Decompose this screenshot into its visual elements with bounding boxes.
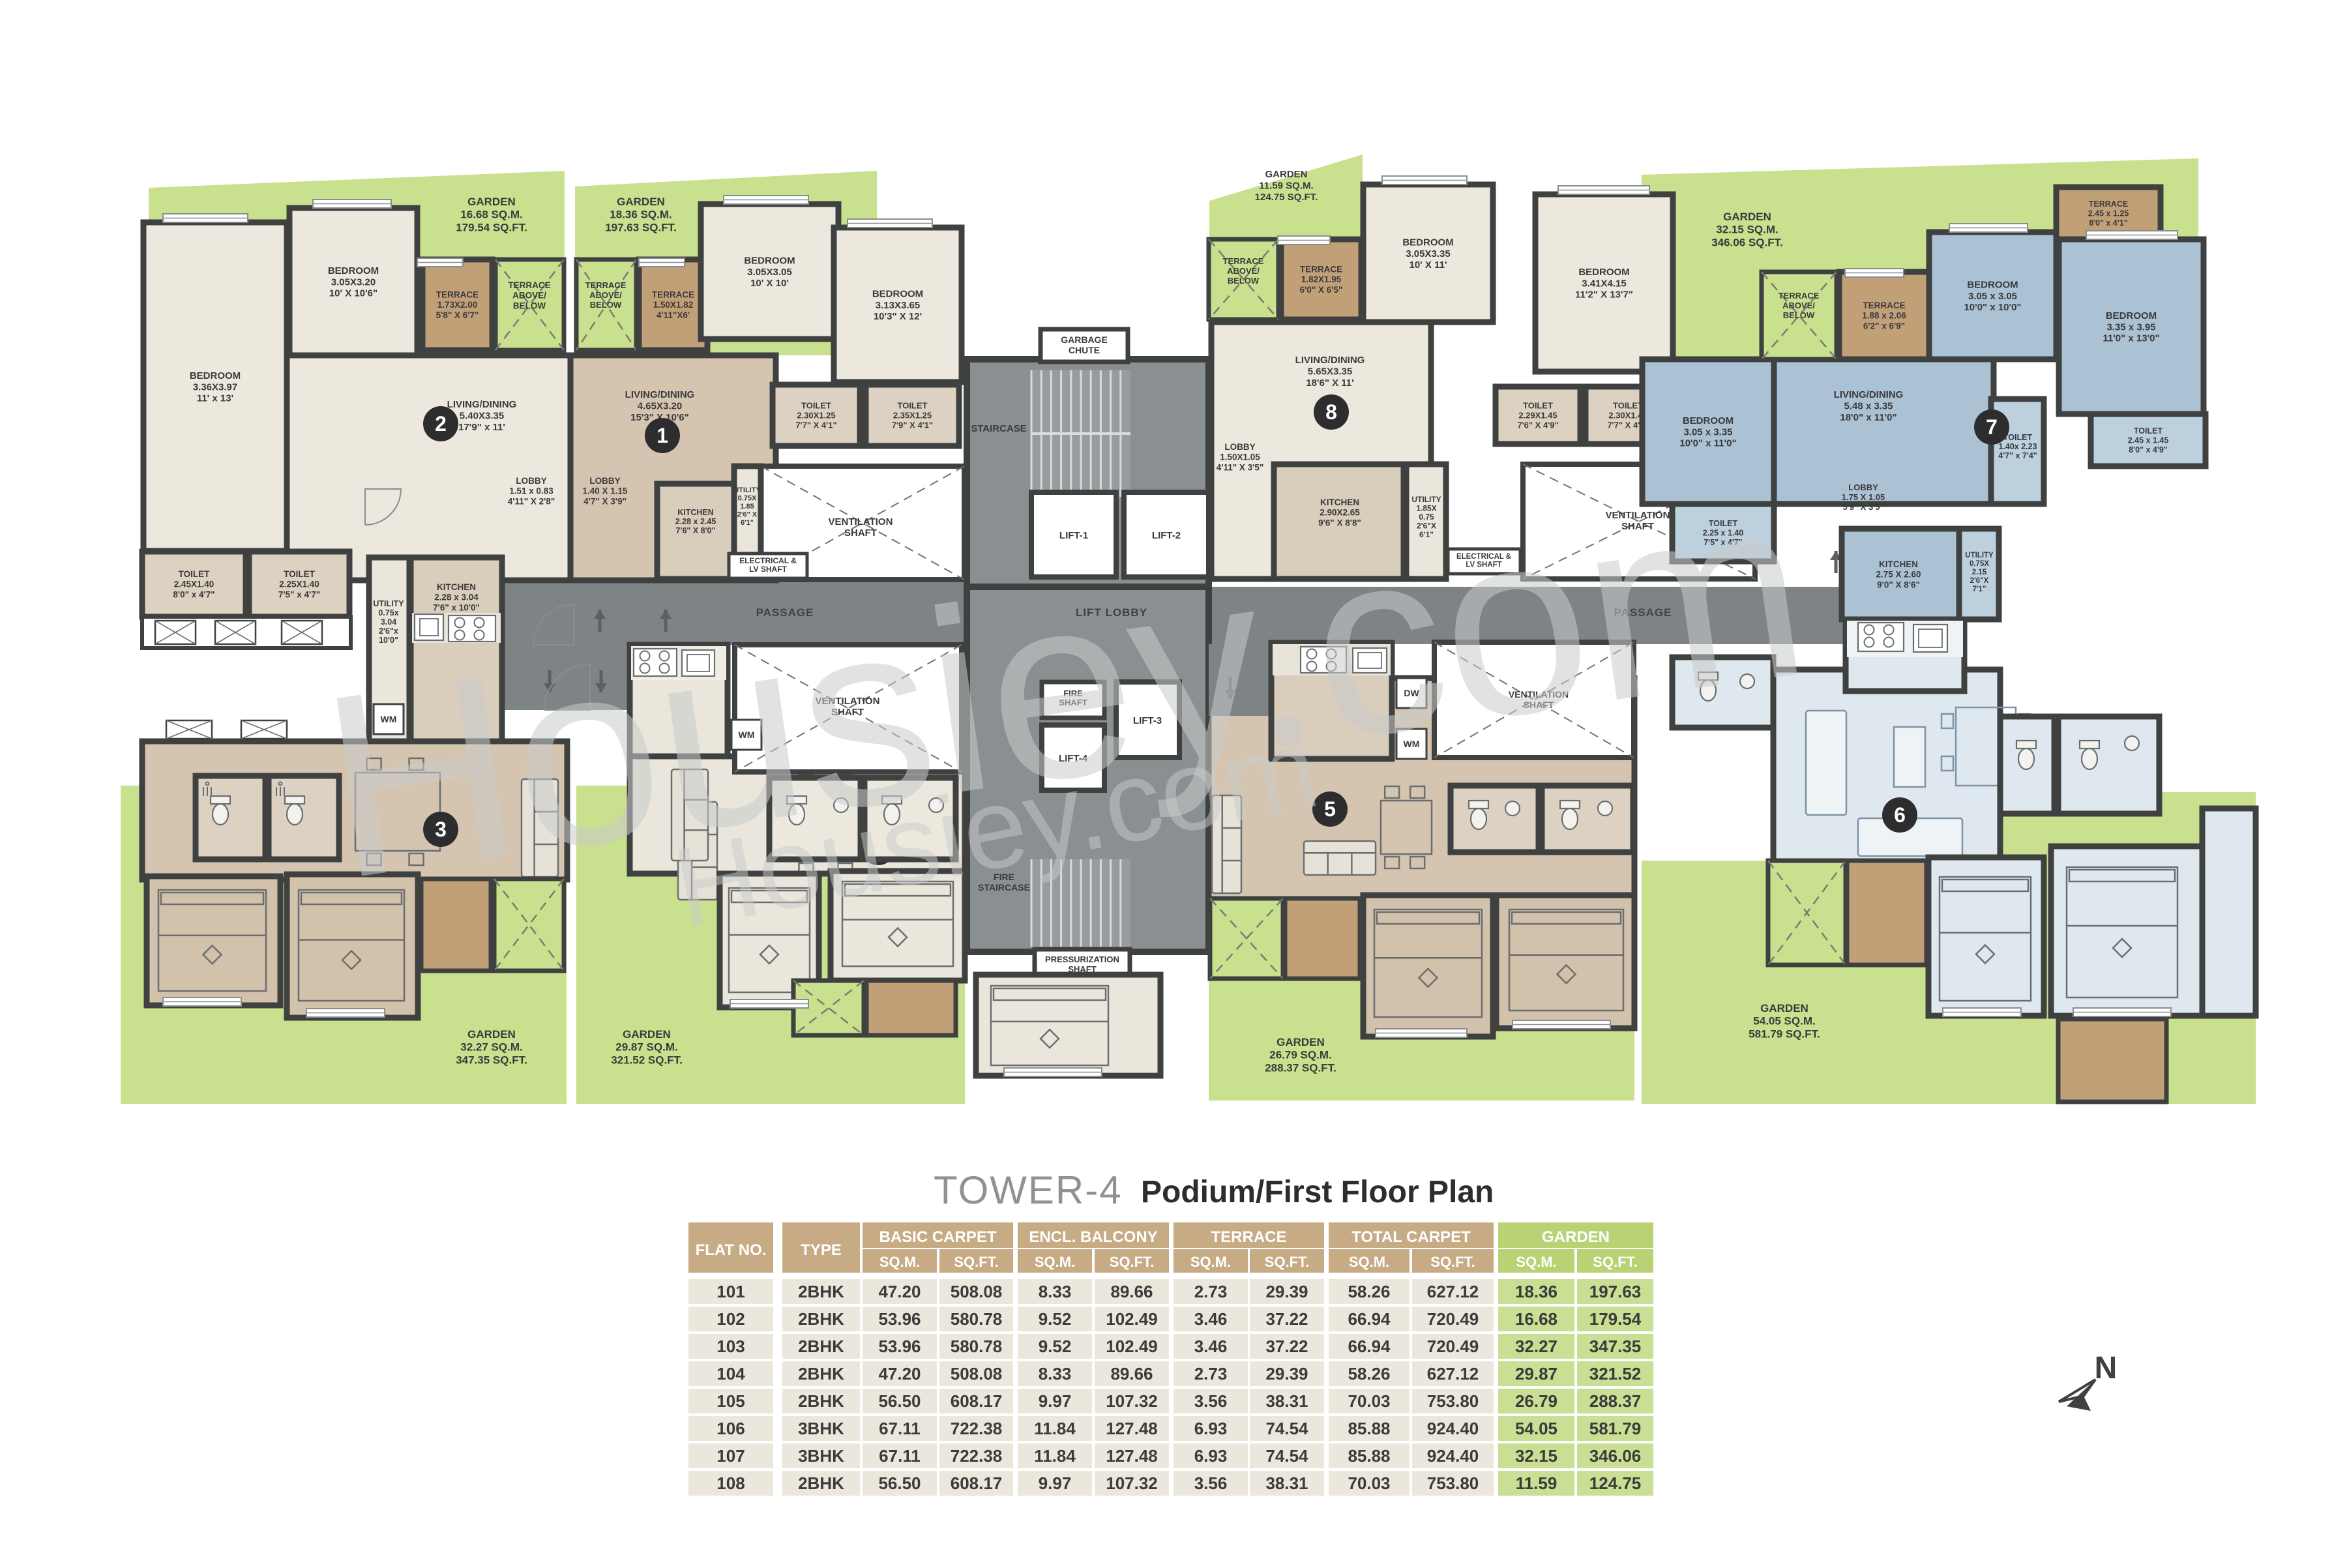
svg-text:TERRACE2.45 x 1.258'0" x 4'1": TERRACE2.45 x 1.258'0" x 4'1" — [2088, 200, 2129, 228]
svg-text:47.20: 47.20 — [878, 1282, 921, 1301]
svg-text:924.40: 924.40 — [1427, 1419, 1479, 1438]
svg-text:1: 1 — [657, 424, 668, 447]
svg-text:TOILET2.45X1.408'0" x 4'7": TOILET2.45X1.408'0" x 4'7" — [173, 569, 214, 599]
svg-text:2BHK: 2BHK — [798, 1309, 844, 1329]
svg-text:29.39: 29.39 — [1265, 1282, 1308, 1301]
svg-text:608.17: 608.17 — [951, 1391, 1003, 1411]
svg-text:85.88: 85.88 — [1348, 1446, 1390, 1466]
svg-text:26.79: 26.79 — [1515, 1391, 1557, 1411]
svg-text:74.54: 74.54 — [1265, 1419, 1308, 1438]
svg-text:103: 103 — [716, 1337, 745, 1356]
svg-text:107: 107 — [716, 1446, 745, 1466]
svg-text:SQ.FT.: SQ.FT. — [954, 1254, 998, 1270]
svg-text:16.68: 16.68 — [1515, 1309, 1557, 1329]
svg-text:179.54: 179.54 — [1589, 1309, 1642, 1329]
svg-text:58.26: 58.26 — [1348, 1364, 1390, 1383]
svg-text:38.31: 38.31 — [1265, 1391, 1308, 1411]
svg-text:108: 108 — [716, 1473, 745, 1493]
svg-text:722.38: 722.38 — [951, 1419, 1003, 1438]
svg-text:2BHK: 2BHK — [798, 1364, 844, 1383]
svg-text:TERRACEABOVE/BELOW: TERRACEABOVE/BELOW — [1223, 256, 1264, 286]
svg-text:53.96: 53.96 — [878, 1309, 921, 1329]
svg-text:TERRACE1.88 x 2.066'2" x 6'9": TERRACE1.88 x 2.066'2" x 6'9" — [1862, 301, 1906, 331]
svg-text:722.38: 722.38 — [951, 1446, 1003, 1466]
svg-text:TOTAL CARPET: TOTAL CARPET — [1351, 1228, 1471, 1246]
svg-text:BEDROOM3.05X3.2010' X 10'6": BEDROOM3.05X3.2010' X 10'6" — [328, 265, 379, 299]
svg-text:KITCHEN2.28 x 3.047'6" x 10'0": KITCHEN2.28 x 3.047'6" x 10'0" — [433, 582, 480, 612]
svg-text:SQ.M.: SQ.M. — [1516, 1254, 1556, 1270]
svg-text:18.36: 18.36 — [1515, 1282, 1557, 1301]
svg-text:608.17: 608.17 — [951, 1473, 1003, 1493]
svg-text:KITCHEN2.28 x 2.457'6" X 8'0": KITCHEN2.28 x 2.457'6" X 8'0" — [675, 508, 716, 535]
svg-text:753.80: 753.80 — [1427, 1391, 1479, 1411]
svg-text:5: 5 — [1324, 797, 1336, 821]
svg-text:SQ.M.: SQ.M. — [1190, 1254, 1231, 1270]
svg-text:TERRACEABOVE/BELOW: TERRACEABOVE/BELOW — [585, 280, 627, 310]
svg-text:580.78: 580.78 — [951, 1337, 1003, 1356]
svg-text:753.80: 753.80 — [1427, 1473, 1479, 1493]
svg-text:346.06: 346.06 — [1589, 1446, 1642, 1466]
svg-text:STAIRCASE: STAIRCASE — [971, 423, 1027, 434]
svg-text:89.66: 89.66 — [1110, 1364, 1153, 1383]
svg-text:56.50: 56.50 — [878, 1391, 921, 1411]
svg-text:102.49: 102.49 — [1106, 1337, 1158, 1356]
svg-text:3.56: 3.56 — [1194, 1473, 1228, 1493]
svg-text:BASIC CARPET: BASIC CARPET — [879, 1228, 996, 1246]
svg-text:BEDROOM3.05 x 3.3510'0" x 11'0: BEDROOM3.05 x 3.3510'0" x 11'0" — [1679, 415, 1736, 449]
svg-text:107.32: 107.32 — [1106, 1391, 1158, 1411]
svg-text:3.56: 3.56 — [1194, 1391, 1228, 1411]
svg-text:FLAT NO.: FLAT NO. — [696, 1241, 767, 1259]
svg-text:11.84: 11.84 — [1034, 1446, 1076, 1466]
svg-text:102.49: 102.49 — [1106, 1309, 1158, 1329]
svg-text:106: 106 — [716, 1419, 745, 1438]
svg-text:56.50: 56.50 — [878, 1473, 921, 1493]
svg-text:66.94: 66.94 — [1348, 1337, 1391, 1356]
svg-text:32.15: 32.15 — [1515, 1446, 1557, 1466]
svg-text:720.49: 720.49 — [1427, 1337, 1479, 1356]
svg-text:SQ.M.: SQ.M. — [1035, 1254, 1075, 1270]
svg-text:TERRACE1.50X1.824'11"X6': TERRACE1.50X1.824'11"X6' — [652, 290, 694, 320]
svg-text:127.48: 127.48 — [1106, 1446, 1158, 1466]
svg-text:37.22: 37.22 — [1265, 1309, 1308, 1329]
svg-text:101: 101 — [716, 1282, 745, 1301]
svg-text:BEDROOM3.05 x 3.0510'0" x 10'0: BEDROOM3.05 x 3.0510'0" x 10'0" — [1964, 279, 2021, 313]
svg-text:11.59: 11.59 — [1516, 1473, 1557, 1493]
svg-text:127.48: 127.48 — [1106, 1419, 1158, 1438]
svg-text:67.11: 67.11 — [879, 1419, 921, 1438]
svg-text:ENCL. BALCONY: ENCL. BALCONY — [1029, 1228, 1157, 1246]
svg-text:9.97: 9.97 — [1039, 1391, 1072, 1411]
svg-text:89.66: 89.66 — [1110, 1282, 1153, 1301]
svg-text:TOILET2.35X1.257'9" X 4'1": TOILET2.35X1.257'9" X 4'1" — [892, 400, 933, 430]
svg-text:67.11: 67.11 — [879, 1446, 921, 1466]
svg-text:2BHK: 2BHK — [798, 1391, 844, 1411]
svg-text:TERRACEABOVE/BELOW: TERRACEABOVE/BELOW — [1779, 291, 1820, 320]
svg-text:2: 2 — [435, 412, 447, 436]
svg-text:9.52: 9.52 — [1039, 1337, 1072, 1356]
svg-text:70.03: 70.03 — [1348, 1391, 1390, 1411]
svg-text:9.97: 9.97 — [1039, 1473, 1072, 1493]
svg-text:508.08: 508.08 — [951, 1364, 1003, 1383]
svg-text:581.79: 581.79 — [1589, 1419, 1642, 1438]
svg-text:508.08: 508.08 — [951, 1282, 1003, 1301]
svg-text:85.88: 85.88 — [1348, 1419, 1390, 1438]
svg-text:7: 7 — [1986, 415, 1998, 439]
svg-text:2.73: 2.73 — [1194, 1364, 1228, 1383]
svg-text:3BHK: 3BHK — [798, 1419, 844, 1438]
svg-text:58.26: 58.26 — [1348, 1282, 1390, 1301]
svg-text:3.46: 3.46 — [1194, 1337, 1228, 1356]
svg-text:TERRACE1.73X2.005'8" X 6'7": TERRACE1.73X2.005'8" X 6'7" — [436, 290, 479, 320]
svg-text:70.03: 70.03 — [1348, 1473, 1390, 1493]
svg-text:54.05: 54.05 — [1515, 1419, 1557, 1438]
svg-text:720.49: 720.49 — [1427, 1309, 1479, 1329]
svg-text:TOWER-4: TOWER-4 — [934, 1168, 1123, 1212]
svg-text:11.84: 11.84 — [1034, 1419, 1076, 1438]
svg-text:9.52: 9.52 — [1039, 1309, 1072, 1329]
svg-text:N: N — [2095, 1351, 2118, 1385]
svg-text:SQ.M.: SQ.M. — [1349, 1254, 1389, 1270]
svg-text:38.31: 38.31 — [1265, 1473, 1308, 1493]
svg-text:TERRACE1.82X1.956'0" X 6'5": TERRACE1.82X1.956'0" X 6'5" — [1300, 265, 1343, 295]
svg-text:TOILET2.25X1.407'5" x 4'7": TOILET2.25X1.407'5" x 4'7" — [278, 569, 320, 599]
svg-text:924.40: 924.40 — [1427, 1446, 1479, 1466]
svg-text:BEDROOM3.36X3.9711' x 13': BEDROOM3.36X3.9711' x 13' — [190, 370, 241, 404]
svg-text:32.27: 32.27 — [1515, 1337, 1557, 1356]
svg-text:3.46: 3.46 — [1194, 1309, 1228, 1329]
svg-text:6.93: 6.93 — [1194, 1419, 1228, 1438]
svg-text:TERRACE: TERRACE — [1211, 1228, 1286, 1246]
svg-text:3BHK: 3BHK — [798, 1446, 844, 1466]
svg-text:74.54: 74.54 — [1265, 1446, 1308, 1466]
svg-text:8: 8 — [1325, 400, 1337, 424]
svg-text:124.75: 124.75 — [1589, 1473, 1642, 1493]
svg-text:288.37: 288.37 — [1589, 1391, 1642, 1411]
svg-text:SQ.FT.: SQ.FT. — [1265, 1254, 1309, 1270]
svg-text:197.63: 197.63 — [1589, 1282, 1642, 1301]
svg-text:29.87: 29.87 — [1515, 1364, 1557, 1383]
svg-text:LIVING/DINING5.48 x 3.3518'0": LIVING/DINING5.48 x 3.3518'0" x 11'0" — [1834, 389, 1904, 423]
svg-text:2.73: 2.73 — [1194, 1282, 1228, 1301]
svg-text:627.12: 627.12 — [1427, 1282, 1479, 1301]
svg-text:GARDEN: GARDEN — [1542, 1228, 1610, 1246]
svg-text:8.33: 8.33 — [1039, 1282, 1072, 1301]
svg-text:6: 6 — [1894, 803, 1906, 827]
svg-text:102: 102 — [716, 1309, 745, 1329]
svg-text:321.52: 321.52 — [1589, 1364, 1642, 1383]
svg-text:107.32: 107.32 — [1106, 1473, 1158, 1493]
svg-text:SQ.M.: SQ.M. — [879, 1254, 920, 1270]
svg-text:2BHK: 2BHK — [798, 1473, 844, 1493]
svg-text:627.12: 627.12 — [1427, 1364, 1479, 1383]
svg-text:29.39: 29.39 — [1265, 1364, 1308, 1383]
svg-text:BEDROOM3.13X3.6510'3" X 12': BEDROOM3.13X3.6510'3" X 12' — [872, 288, 923, 322]
svg-text:TOILET2.30X1.257'7" X 4'1": TOILET2.30X1.257'7" X 4'1" — [795, 400, 836, 430]
svg-text:SQ.FT.: SQ.FT. — [1593, 1254, 1637, 1270]
svg-text:KITCHEN2.75 X 2.609'0" X 8'6": KITCHEN2.75 X 2.609'0" X 8'6" — [1876, 559, 1921, 589]
svg-text:104: 104 — [716, 1364, 745, 1383]
svg-text:SQ.FT.: SQ.FT. — [1110, 1254, 1154, 1270]
svg-text:580.78: 580.78 — [951, 1309, 1003, 1329]
svg-text:6.93: 6.93 — [1194, 1446, 1228, 1466]
svg-text:2BHK: 2BHK — [798, 1282, 844, 1301]
svg-text:BEDROOM3.41X4.1511'2" X 13'7": BEDROOM3.41X4.1511'2" X 13'7" — [1575, 267, 1633, 301]
svg-text:Podium/First Floor Plan: Podium/First Floor Plan — [1141, 1175, 1494, 1209]
svg-text:8.33: 8.33 — [1039, 1364, 1072, 1383]
svg-text:53.96: 53.96 — [878, 1337, 921, 1356]
svg-text:105: 105 — [716, 1391, 745, 1411]
svg-text:2BHK: 2BHK — [798, 1337, 844, 1356]
svg-text:SQ.FT.: SQ.FT. — [1430, 1254, 1475, 1270]
svg-text:TYPE: TYPE — [801, 1241, 842, 1259]
svg-text:BEDROOM3.05X3.0510' X 10': BEDROOM3.05X3.0510' X 10' — [744, 255, 795, 289]
svg-text:BEDROOM3.05X3.3510' X 11': BEDROOM3.05X3.3510' X 11' — [1402, 237, 1453, 271]
svg-text:66.94: 66.94 — [1348, 1309, 1391, 1329]
svg-text:47.20: 47.20 — [878, 1364, 921, 1383]
svg-text:TOILET2.29X1.457'6" X 4'9": TOILET2.29X1.457'6" X 4'9" — [1517, 400, 1558, 430]
svg-text:TERRACEABOVE/BELOW: TERRACEABOVE/BELOW — [508, 280, 550, 310]
svg-text:TOILET2.45 x 1.458'0" x 4'9": TOILET2.45 x 1.458'0" x 4'9" — [2128, 426, 2169, 454]
svg-text:BEDROOM3.35 x 3.9511'0" x 13'0: BEDROOM3.35 x 3.9511'0" x 13'0" — [2103, 310, 2159, 344]
svg-text:37.22: 37.22 — [1265, 1337, 1308, 1356]
svg-text:347.35: 347.35 — [1589, 1337, 1642, 1356]
